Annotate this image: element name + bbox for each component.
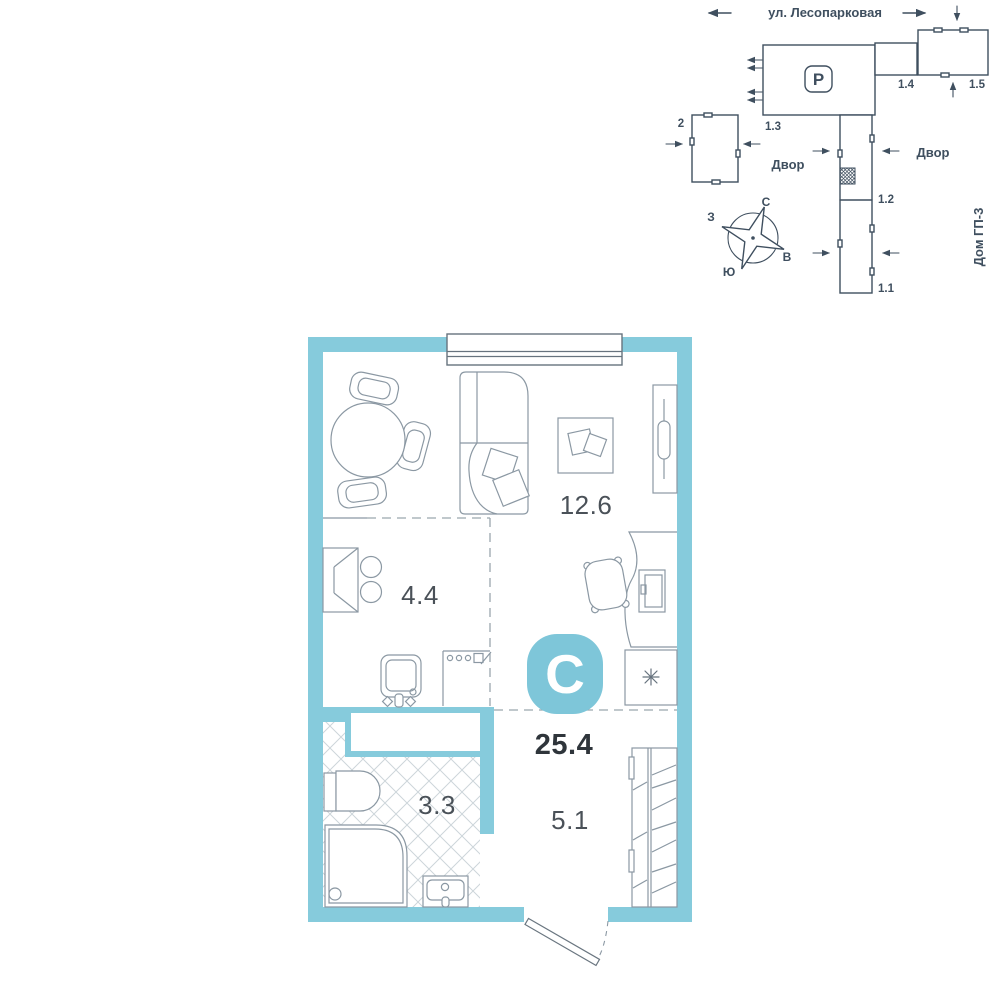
stove-knob-icon [465, 655, 470, 660]
facade-notch [712, 180, 720, 184]
courtyard-label-right: Двор [917, 145, 950, 160]
stove-knob-icon [456, 655, 461, 660]
kitchen-sink [381, 655, 421, 707]
toilet [324, 771, 380, 811]
building-1-4-label: 1.4 [898, 79, 915, 91]
faucet-handle-icon [406, 697, 416, 707]
facade-notch [838, 240, 842, 247]
building-strip [840, 115, 872, 293]
bathroom-area-label: 3.3 [418, 790, 456, 820]
floorplan-drawing: ул. Лесопарковая P 1.3 1.4 1.5 [0, 0, 1000, 1000]
facade-notch [838, 150, 842, 157]
parking-entry-arrows [748, 60, 762, 100]
dining-chair [336, 476, 387, 509]
sofa [460, 372, 529, 514]
living-room-area-label: 12.6 [560, 490, 613, 520]
kitchen-area-label: 4.4 [401, 580, 439, 610]
building-1-1-label: 1.1 [878, 283, 895, 295]
faucet-icon [442, 897, 449, 907]
building-1-4 [875, 43, 917, 75]
compass-north-label: С [762, 195, 771, 209]
window [447, 334, 622, 365]
compass-south-label: Ю [723, 265, 735, 279]
dining-set [331, 370, 433, 509]
facade-notch [736, 150, 740, 157]
parking-letter: P [813, 70, 824, 89]
unit-location-marker-icon [840, 168, 855, 184]
facade-notch [960, 28, 968, 32]
dining-table [331, 403, 405, 477]
total-area-label: 25.4 [535, 729, 593, 761]
facade-notch [941, 73, 949, 77]
building-1-2-label: 1.2 [878, 194, 894, 206]
door-leaf [525, 918, 600, 965]
facade-notch [870, 268, 874, 275]
shower [325, 825, 407, 907]
zone-boundaries [323, 518, 677, 710]
facade-notch [704, 113, 712, 117]
house-name-label: Дом ГП-3 [971, 208, 986, 267]
building-1-5 [918, 30, 988, 75]
apartment-floor-plan: 12.6 4.4 3.3 5.1 С 25.4 [308, 334, 692, 965]
facade-notch [870, 225, 874, 232]
dining-chair [348, 370, 401, 406]
facade-notch [690, 138, 694, 145]
wardrobe [629, 748, 677, 907]
facade-notch [870, 135, 874, 142]
ottoman [558, 418, 613, 473]
courtyard-label-left: Двор [772, 157, 805, 172]
monitor-icon [639, 570, 665, 612]
washing-machine-icon [643, 669, 659, 685]
entrance-door [525, 918, 608, 965]
burner-icon [361, 582, 382, 603]
building-1-3-label: 1.3 [765, 121, 781, 133]
door-swing-arc [597, 921, 608, 960]
burner-icon [361, 557, 382, 578]
stove-knob-icon [447, 655, 452, 660]
bathroom-sink [423, 876, 468, 907]
stove-counter [443, 651, 491, 706]
compass-west-label: З [707, 210, 715, 224]
kitchen-hob-unit [323, 548, 382, 612]
facade-notch [934, 28, 942, 32]
desk-chair [583, 557, 630, 614]
developer-logo: С [527, 634, 603, 714]
logo-letter: С [545, 643, 585, 705]
desk [625, 532, 677, 647]
tv-unit [653, 385, 677, 493]
building-2 [692, 115, 738, 182]
faucet-icon [395, 694, 403, 707]
hallway-area-label: 5.1 [551, 805, 589, 835]
washing-machine [625, 650, 677, 705]
faucet-handle-icon [383, 697, 393, 707]
building-1-5-label: 1.5 [969, 79, 986, 91]
street-label: ул. Лесопарковая [768, 5, 882, 20]
floorplan-page: ул. Лесопарковая P 1.3 1.4 1.5 [0, 0, 1000, 1000]
building-2-label: 2 [678, 118, 684, 130]
compass-east-label: В [783, 250, 792, 264]
tv-icon [658, 421, 670, 459]
compass-rose-icon: С З В Ю [707, 195, 791, 279]
site-plan: ул. Лесопарковая P 1.3 1.4 1.5 [666, 5, 988, 295]
